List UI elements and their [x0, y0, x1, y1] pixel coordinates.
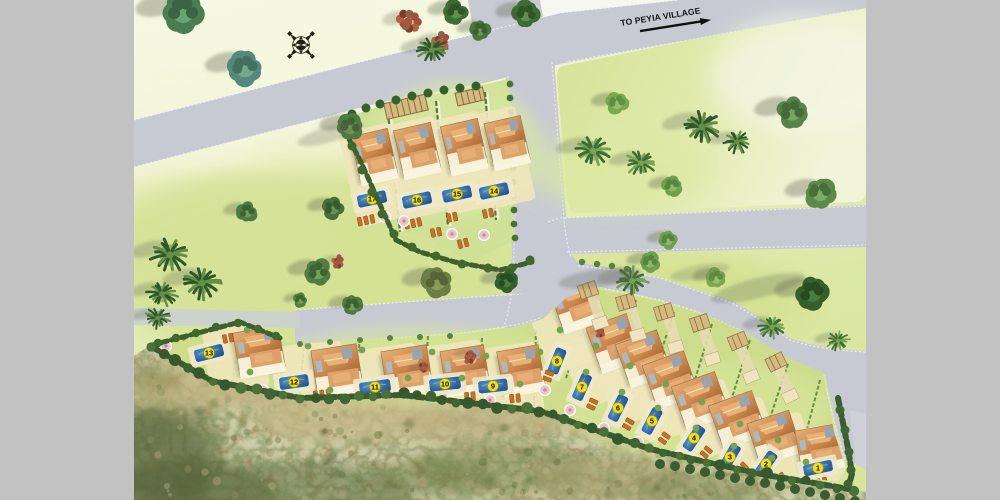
svg-text:12: 12 — [290, 378, 298, 387]
svg-text:7: 7 — [580, 383, 584, 392]
svg-text:14: 14 — [490, 187, 499, 196]
svg-text:5: 5 — [650, 417, 654, 426]
svg-text:3: 3 — [728, 453, 732, 462]
svg-text:1: 1 — [816, 464, 820, 473]
svg-text:9: 9 — [491, 382, 495, 391]
svg-text:8: 8 — [555, 357, 559, 366]
svg-text:11: 11 — [371, 383, 379, 392]
svg-text:16: 16 — [413, 196, 421, 205]
svg-text:10: 10 — [441, 380, 449, 389]
svg-text:6: 6 — [616, 404, 620, 413]
svg-text:13: 13 — [205, 349, 213, 358]
svg-text:15: 15 — [453, 190, 461, 199]
